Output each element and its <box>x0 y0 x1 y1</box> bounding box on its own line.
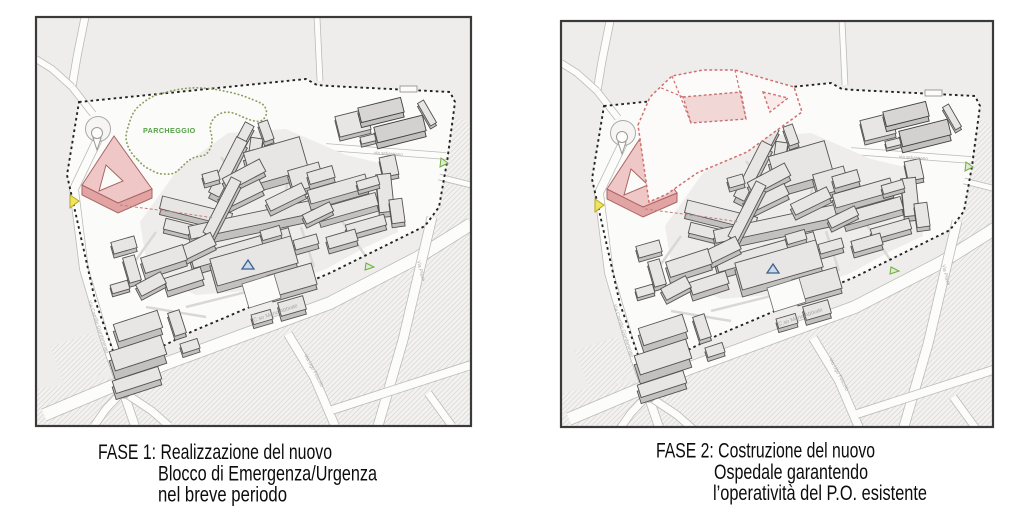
svg-text:FASE 1: Realizzazione del nuov: FASE 1: Realizzazione del nuovo <box>98 441 332 464</box>
svg-text:l’operatività del P.O. esisten: l’operatività del P.O. esistente <box>713 482 927 505</box>
svg-text:Blocco di Emergenza/Urgenza: Blocco di Emergenza/Urgenza <box>158 463 377 486</box>
svg-text:nel breve periodo: nel breve periodo <box>158 484 287 507</box>
svg-text:PARCHEGGIO: PARCHEGGIO <box>143 126 196 135</box>
svg-text:Ospedale garantendo: Ospedale garantendo <box>714 461 868 484</box>
svg-text:FASE 2: Costruzione del nuovo: FASE 2: Costruzione del nuovo <box>656 440 875 463</box>
